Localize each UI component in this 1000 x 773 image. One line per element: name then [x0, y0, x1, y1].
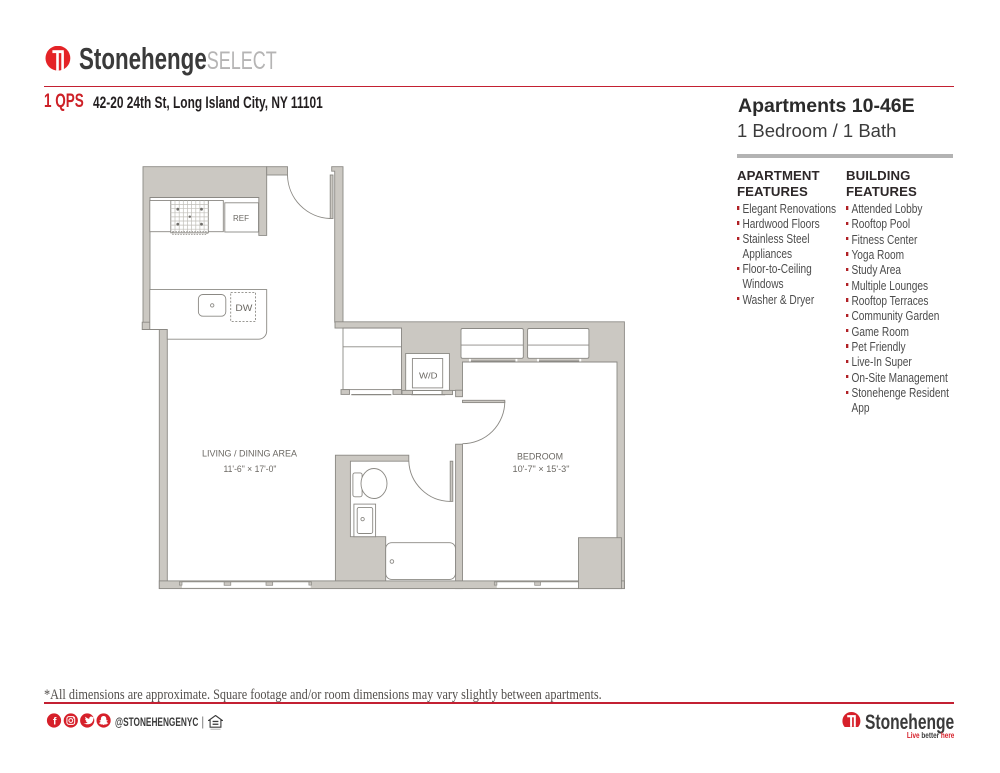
- svg-text:11'-6" × 17'-0": 11'-6" × 17'-0": [224, 464, 277, 474]
- svg-text:BEDROOM: BEDROOM: [517, 452, 563, 462]
- svg-text:LIVING / DINING AREA: LIVING / DINING AREA: [202, 448, 298, 458]
- svg-text:DW: DW: [235, 303, 253, 313]
- svg-text:10'-7" × 15'-3": 10'-7" × 15'-3": [513, 464, 570, 474]
- svg-text:W/D: W/D: [419, 371, 438, 381]
- svg-text:f: f: [53, 715, 57, 727]
- svg-text:REF: REF: [233, 213, 249, 223]
